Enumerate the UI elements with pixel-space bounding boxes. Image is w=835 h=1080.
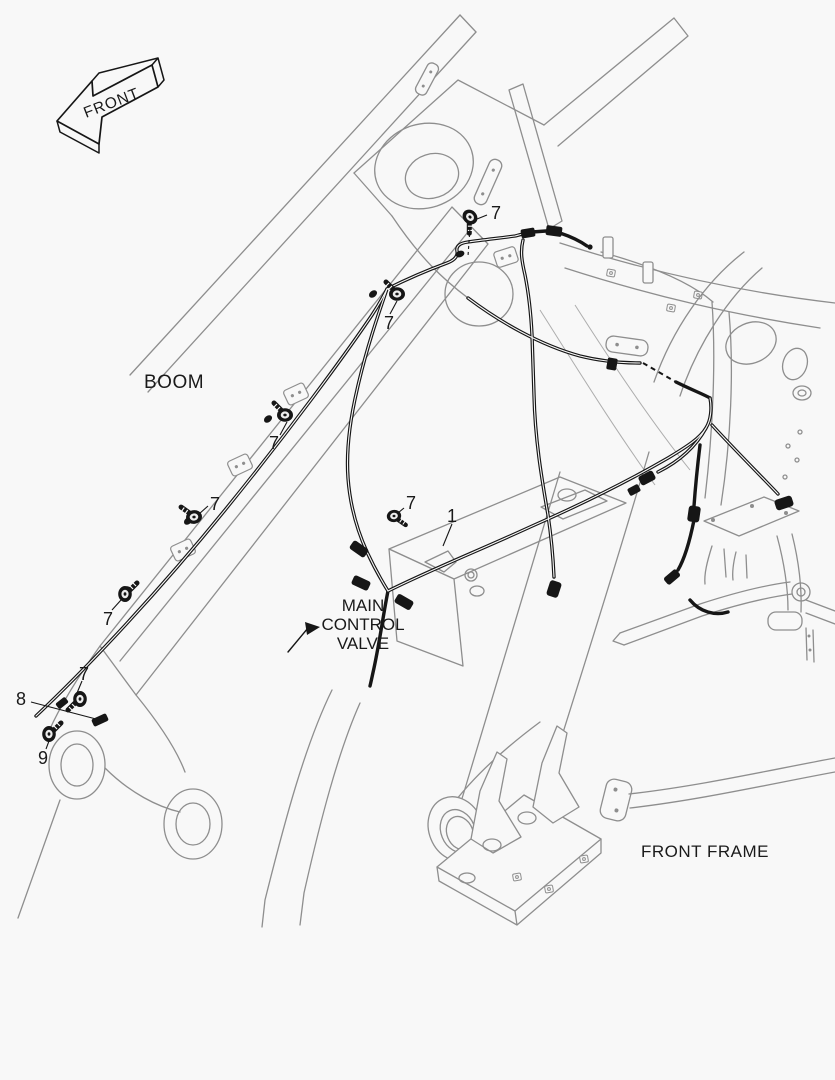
callout-7a: 7 xyxy=(491,203,501,223)
bolt-icon xyxy=(118,582,137,602)
boom-foot-pivots xyxy=(49,731,222,859)
callout-7d: 7 xyxy=(210,494,220,514)
boom-label: BOOM xyxy=(144,372,204,393)
bottom-mount-plate xyxy=(419,726,835,925)
parts-diagram-page: FRONT BOOM MAIN CONTROL VALVE FRONT FRAM… xyxy=(0,0,835,1080)
front-direction-arrow-icon: FRONT xyxy=(57,58,164,153)
callout-7g: 7 xyxy=(406,493,416,513)
callout-8: 8 xyxy=(16,689,26,709)
machine-structure xyxy=(18,15,835,927)
bolt-icon xyxy=(386,508,407,528)
callout-1: 1 xyxy=(447,506,457,526)
callout-9: 9 xyxy=(38,748,48,768)
bolt-icon xyxy=(273,403,293,422)
front-frame-label: FRONT FRAME xyxy=(641,842,769,861)
diagram-canvas: FRONT BOOM MAIN CONTROL VALVE FRONT FRAM… xyxy=(0,0,835,1080)
callout-7b: 7 xyxy=(384,313,394,333)
frame-arm-curves xyxy=(262,690,360,927)
front-frame-lower xyxy=(613,497,835,662)
frame-gooseneck xyxy=(540,252,811,485)
mcv-label-line3: VALVE xyxy=(337,634,389,653)
callout-7e: 7 xyxy=(103,609,113,629)
callout-7f: 7 xyxy=(79,664,89,684)
callout-7c: 7 xyxy=(269,433,279,453)
bolt-icon xyxy=(68,691,87,711)
main-control-valve-body xyxy=(389,477,626,666)
mcv-label-line2: CONTROL xyxy=(321,615,404,634)
mcv-label-line1: MAIN xyxy=(342,596,385,615)
